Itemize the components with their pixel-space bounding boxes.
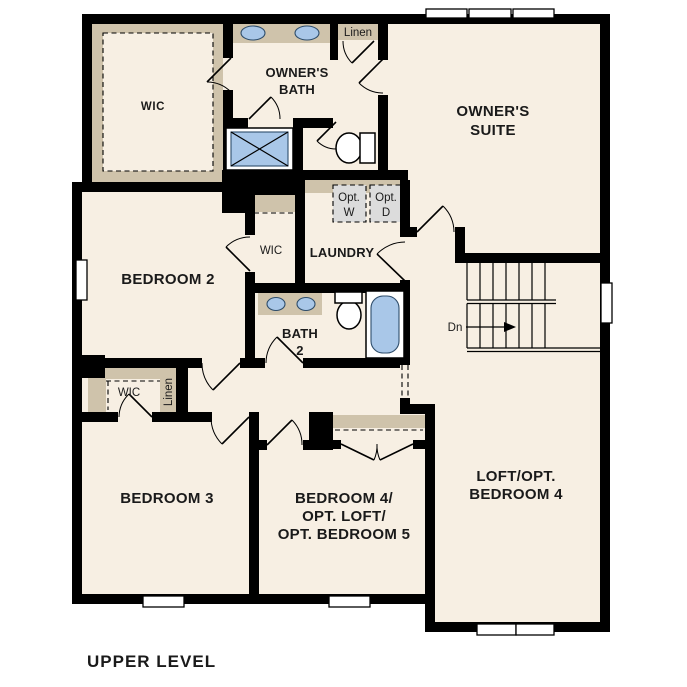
bath2-label-2: 2: [296, 343, 303, 358]
laundry-label: LAUNDRY: [310, 245, 375, 260]
owners-suite-label-2: SUITE: [470, 122, 516, 139]
bath2-toilet: [335, 292, 362, 329]
hall-linen-label: Linen: [163, 378, 175, 406]
bedroom4-closet-shelf: [333, 415, 425, 428]
floor-plan-page: WIC OWNER'S BATH Linen OWNER'S SUITE Opt…: [0, 0, 687, 687]
suite-window-1: [426, 9, 467, 18]
bedroom3-label: BEDROOM 3: [120, 490, 214, 507]
owners-bath-label-2: BATH: [279, 82, 315, 97]
bathtub: [366, 291, 404, 358]
loft-window-1: [477, 624, 516, 635]
bedroom4-label-2: OPT. LOFT/: [302, 508, 386, 525]
bedroom3-window: [143, 596, 184, 607]
bedroom2-window: [76, 260, 87, 300]
suite-window-3: [513, 9, 554, 18]
stair-landing-window: [601, 283, 612, 323]
owners-bath-label-1: OWNER'S: [266, 65, 329, 80]
suite-window-2: [469, 9, 511, 18]
loft-window-2: [516, 624, 554, 635]
owners-suite-label-1: OWNER'S: [456, 103, 529, 120]
floor-plan-drawing: WIC OWNER'S BATH Linen OWNER'S SUITE Opt…: [0, 0, 687, 687]
bedroom4-label-1: BEDROOM 4/: [295, 490, 394, 507]
bedroom4-window: [329, 596, 370, 607]
bedroom3-wic-shelf-left: [88, 378, 106, 412]
shower: [226, 128, 293, 170]
bedroom2-label: BEDROOM 2: [121, 271, 215, 288]
stairs-down-label: Dn: [448, 322, 463, 334]
bedroom2-wic-label: WIC: [260, 245, 282, 257]
owners-wic-label: WIC: [141, 101, 165, 113]
bedroom4-label-3: OPT. BEDROOM 5: [278, 526, 411, 543]
loft-label-2: BEDROOM 4: [469, 486, 563, 503]
opt-washer-label-1: Opt.: [338, 192, 360, 204]
bedroom3-wic-label: WIC: [118, 387, 140, 399]
opt-dryer-label-2: D: [382, 207, 390, 219]
opt-dryer-label-1: Opt.: [375, 192, 397, 204]
bath2-label-1: BATH: [282, 326, 318, 341]
linen-upper-label: Linen: [344, 27, 372, 39]
loft-cased-opening: [400, 365, 410, 398]
plan-title: UPPER LEVEL: [87, 652, 216, 671]
bedroom2-wic-shelf: [252, 195, 295, 212]
loft-label-1: LOFT/OPT.: [476, 468, 555, 485]
owners-toilet: [336, 133, 375, 163]
opt-washer-label-2: W: [344, 207, 355, 219]
